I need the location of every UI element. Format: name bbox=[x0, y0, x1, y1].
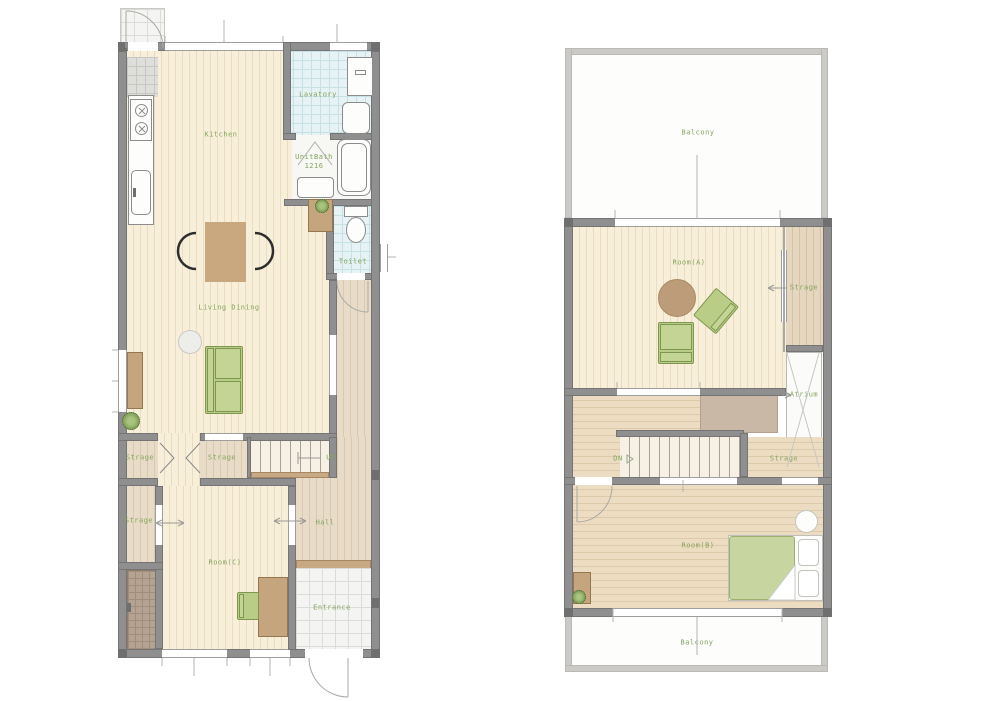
label-balcony-top: Balcony bbox=[681, 129, 714, 138]
lavatory-top-window bbox=[330, 42, 367, 51]
label-up: UP bbox=[326, 454, 335, 463]
sofa-backrest bbox=[207, 348, 214, 412]
wall-roomc-top1 bbox=[118, 478, 158, 486]
service-vestibule-floor bbox=[127, 57, 158, 97]
label-kitchen: Kitchen bbox=[204, 131, 237, 140]
wall2-right bbox=[823, 218, 832, 617]
washbasin bbox=[342, 102, 370, 134]
label-room-a: Room(A) bbox=[672, 259, 705, 268]
stove-burner-2 bbox=[135, 122, 148, 135]
roomc-chair bbox=[237, 592, 259, 620]
corner2-post-tr bbox=[823, 218, 832, 227]
wall-stairs2-top bbox=[616, 430, 744, 437]
washing-machine bbox=[347, 57, 373, 96]
label-entrance: Entrance bbox=[313, 604, 351, 613]
sofa-cushion2 bbox=[215, 381, 241, 412]
corner-post-bl bbox=[118, 649, 127, 658]
roomb-top-window bbox=[660, 477, 737, 485]
closet-top-slider bbox=[205, 433, 243, 441]
label-storage-mid: Strage bbox=[770, 455, 798, 464]
room-c-bottom-window2 bbox=[250, 649, 290, 658]
room-a-chair-2-back bbox=[660, 352, 692, 362]
label-unitbath: UnitBath1216 bbox=[295, 153, 333, 171]
room-a-hall-slider bbox=[617, 388, 700, 396]
label-dn: DN bbox=[613, 455, 622, 464]
label-living-dining: Living Dining bbox=[198, 304, 259, 313]
balcony-bottom-wall-e bbox=[821, 612, 828, 672]
entrance-door-opening bbox=[305, 649, 363, 658]
room-a-round-table bbox=[658, 279, 696, 317]
bath-sink bbox=[297, 177, 334, 198]
floor-plan-canvas: Kitchen Lavatory UnitBath1216 Toilet Liv… bbox=[0, 0, 992, 701]
balcony-bottom-wall-s bbox=[565, 665, 828, 672]
bed-mattress bbox=[729, 536, 795, 600]
label-toilet: Toilet bbox=[339, 258, 367, 267]
plant-roomb bbox=[572, 590, 586, 604]
sofa-cushion bbox=[215, 348, 241, 379]
roomb-stool bbox=[795, 510, 818, 533]
entrance-door-stop bbox=[372, 598, 379, 608]
label-lavatory: Lavatory bbox=[299, 91, 337, 100]
wall-closetrow-top1 bbox=[118, 433, 158, 441]
roomc-chair-back bbox=[239, 594, 244, 618]
corner-post-tr bbox=[371, 42, 380, 51]
closet-door-handle bbox=[127, 603, 131, 612]
staircase-f2 bbox=[620, 437, 740, 477]
label-unitbath-line2: 1216 bbox=[305, 162, 324, 170]
roomb-door-opening bbox=[575, 477, 612, 485]
label-storage-top-left: Strage bbox=[126, 454, 154, 463]
roomc-right-door bbox=[288, 505, 296, 545]
hall-upper-floor bbox=[337, 280, 371, 437]
room-a-storage-divider bbox=[783, 227, 785, 352]
roomc-desk bbox=[258, 577, 288, 637]
wall-storage-ml-bottom bbox=[118, 562, 163, 570]
corner2-post-bl bbox=[564, 608, 573, 617]
bed-pillow-1 bbox=[798, 539, 819, 566]
label-hall: Hall bbox=[316, 519, 335, 528]
balcony-top-wall-n bbox=[565, 48, 828, 55]
toilet-tank bbox=[344, 206, 368, 217]
toilet-door-opening bbox=[337, 273, 365, 280]
sofa bbox=[205, 346, 243, 414]
label-room-c: Room(C) bbox=[208, 559, 241, 568]
porch-door-opening bbox=[128, 42, 158, 51]
plant-living-corner bbox=[122, 412, 140, 430]
label-room-b: Room(B) bbox=[681, 542, 714, 551]
toilet-side-window bbox=[380, 244, 388, 272]
wall-lavatory-left bbox=[283, 42, 291, 140]
balcony-top-wall-e bbox=[821, 48, 828, 218]
washing-machine-door bbox=[355, 70, 366, 75]
room-a-chair-2-seat bbox=[660, 324, 692, 350]
corner2-post-br bbox=[823, 608, 832, 617]
stove-burner-1 bbox=[135, 104, 148, 117]
room-a-chair-2 bbox=[658, 322, 694, 364]
closet-under-stairs bbox=[127, 570, 157, 651]
label-storage-mid-left: Strage bbox=[125, 517, 153, 526]
corner-post-tl bbox=[118, 42, 127, 51]
futon-closet bbox=[700, 393, 778, 433]
hall-door-stop bbox=[372, 470, 379, 480]
wall2-left bbox=[564, 218, 573, 617]
wall-storage-atrium bbox=[786, 345, 823, 352]
wall-roomc-top2 bbox=[200, 478, 296, 486]
label-atrium: Atrium bbox=[790, 391, 818, 400]
bed-pillow-2 bbox=[798, 570, 819, 597]
corner2-post-tl bbox=[564, 218, 573, 227]
living-left-window bbox=[118, 350, 127, 412]
label-storage-top-right: Strage bbox=[208, 454, 236, 463]
roomb-balcony-window bbox=[613, 608, 782, 617]
plant-toilet-shelf bbox=[315, 199, 329, 213]
room-c-bottom-window1 bbox=[162, 649, 227, 658]
wall-stairs2-right bbox=[740, 433, 748, 477]
kitchen-top-window bbox=[165, 42, 283, 51]
living-round-mat bbox=[178, 330, 202, 354]
entrance-door bbox=[309, 658, 348, 697]
label-storage-right: Strage bbox=[790, 284, 818, 293]
balcony-bottom-wall-w bbox=[565, 612, 572, 672]
label-balcony-bottom: Balcony bbox=[680, 639, 713, 648]
dining-table bbox=[205, 222, 246, 282]
bathtub-inner bbox=[341, 143, 367, 192]
kitchen-faucet bbox=[133, 188, 136, 197]
balcony-top-wall-w bbox=[565, 48, 572, 218]
wall-right bbox=[371, 51, 380, 658]
toilet-bowl bbox=[346, 217, 366, 243]
roomc-left-door bbox=[155, 505, 163, 545]
wall-lav-bath1 bbox=[283, 133, 296, 140]
wall-stairs-left bbox=[247, 437, 251, 478]
living-hall-slider bbox=[329, 335, 337, 395]
storage-mid-window bbox=[782, 477, 818, 485]
closet-passage-floor bbox=[158, 433, 200, 486]
room-a-balcony-window bbox=[615, 218, 780, 227]
label-unitbath-line1: UnitBath bbox=[295, 153, 333, 161]
corner-post-br bbox=[371, 649, 380, 658]
sideboard bbox=[127, 352, 143, 409]
